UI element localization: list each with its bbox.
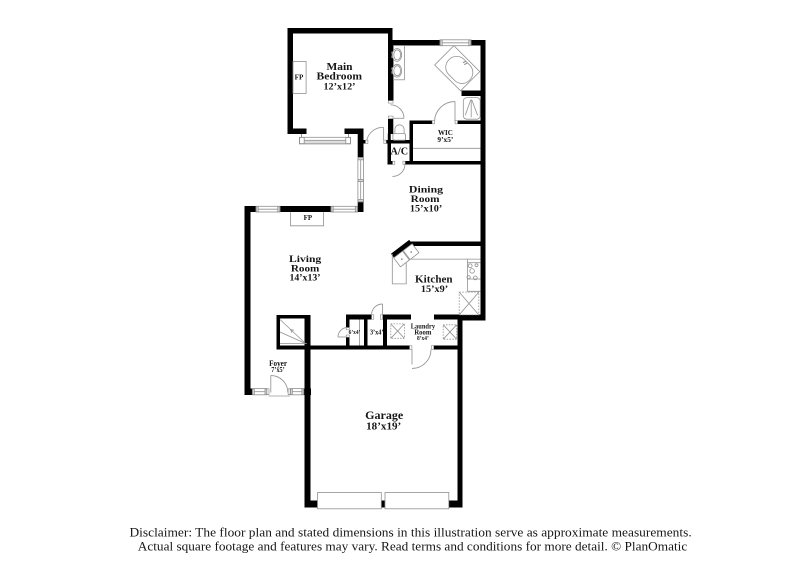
svg-text:15’x10’: 15’x10’ [410, 203, 442, 213]
svg-text:14’x13’: 14’x13’ [290, 273, 321, 283]
svg-text:15’x9’: 15’x9’ [421, 285, 448, 295]
svg-text:Disclaimer: The floor plan and: Disclaimer: The floor plan and stated di… [130, 526, 692, 540]
svg-text:6’x4’: 6’x4’ [349, 330, 361, 336]
svg-text:A/C: A/C [391, 147, 409, 158]
svg-text:12’x12’: 12’x12’ [324, 82, 356, 92]
svg-text:18’x19’: 18’x19’ [366, 422, 401, 433]
svg-text:FP: FP [295, 72, 304, 81]
svg-text:Kitchen: Kitchen [415, 273, 453, 285]
svg-text:3’x4’: 3’x4’ [370, 329, 384, 337]
svg-text:9’x5’: 9’x5’ [437, 136, 453, 144]
svg-text:Garage: Garage [365, 408, 404, 422]
svg-text:7’x5’: 7’x5’ [271, 365, 284, 374]
svg-text:FP: FP [304, 213, 313, 222]
svg-text:8’x4’: 8’x4’ [417, 335, 429, 342]
svg-text:Actual square footage and feat: Actual square footage and features may v… [138, 540, 688, 554]
